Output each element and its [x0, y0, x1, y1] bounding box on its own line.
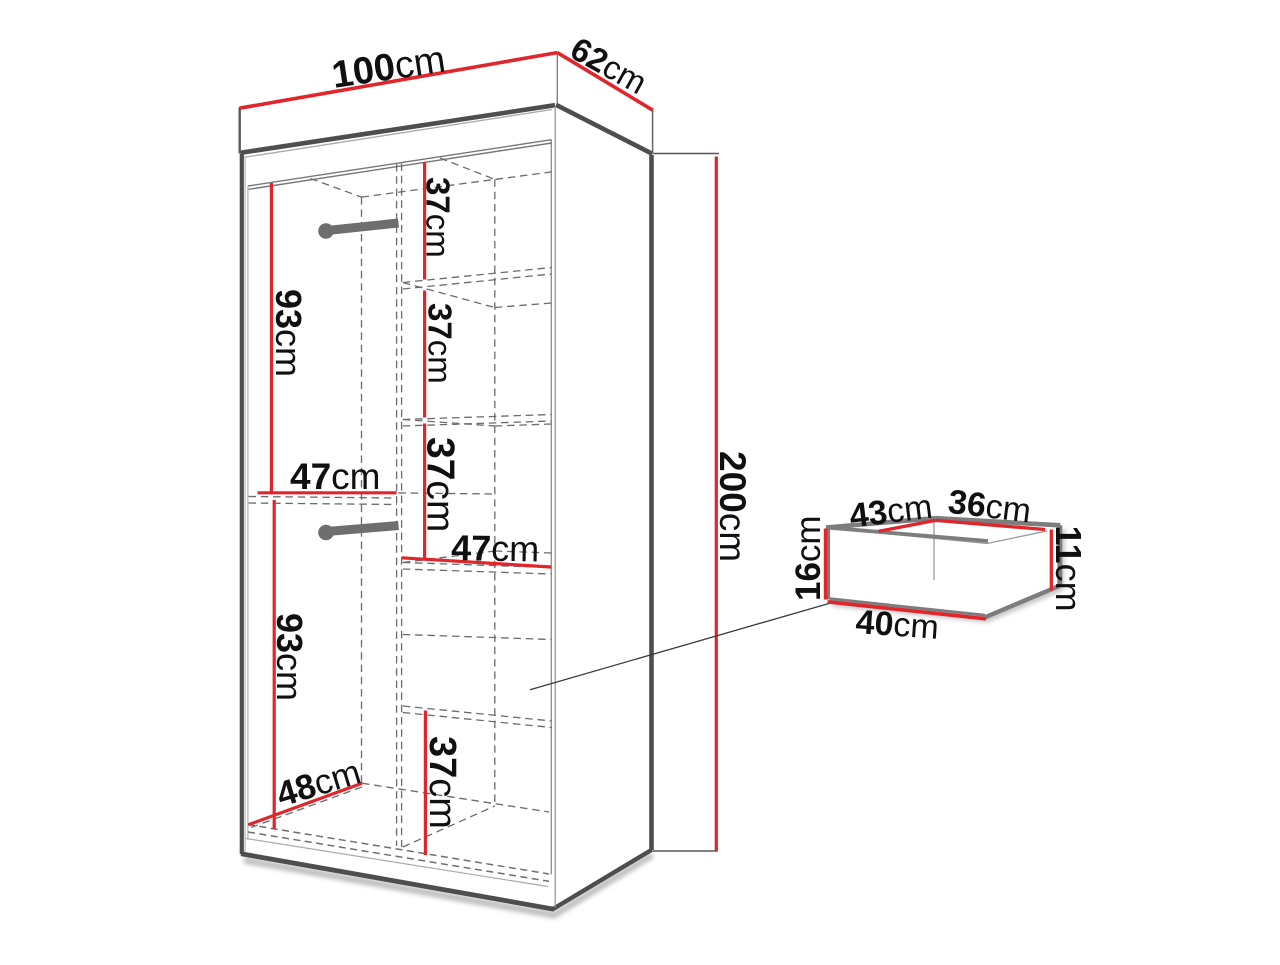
svg-text:37cm: 37cm	[419, 437, 462, 532]
svg-text:40cm: 40cm	[854, 603, 940, 647]
svg-text:37cm: 37cm	[422, 303, 459, 384]
svg-text:37cm: 37cm	[420, 177, 457, 258]
svg-text:47cm: 47cm	[451, 527, 540, 570]
svg-text:11cm: 11cm	[1048, 526, 1089, 612]
svg-text:16cm: 16cm	[789, 515, 828, 601]
svg-text:37cm: 37cm	[421, 736, 463, 829]
svg-text:93cm: 93cm	[268, 289, 309, 377]
svg-text:200cm: 200cm	[712, 451, 753, 562]
svg-text:47cm: 47cm	[290, 456, 380, 497]
svg-text:93cm: 93cm	[269, 613, 310, 701]
